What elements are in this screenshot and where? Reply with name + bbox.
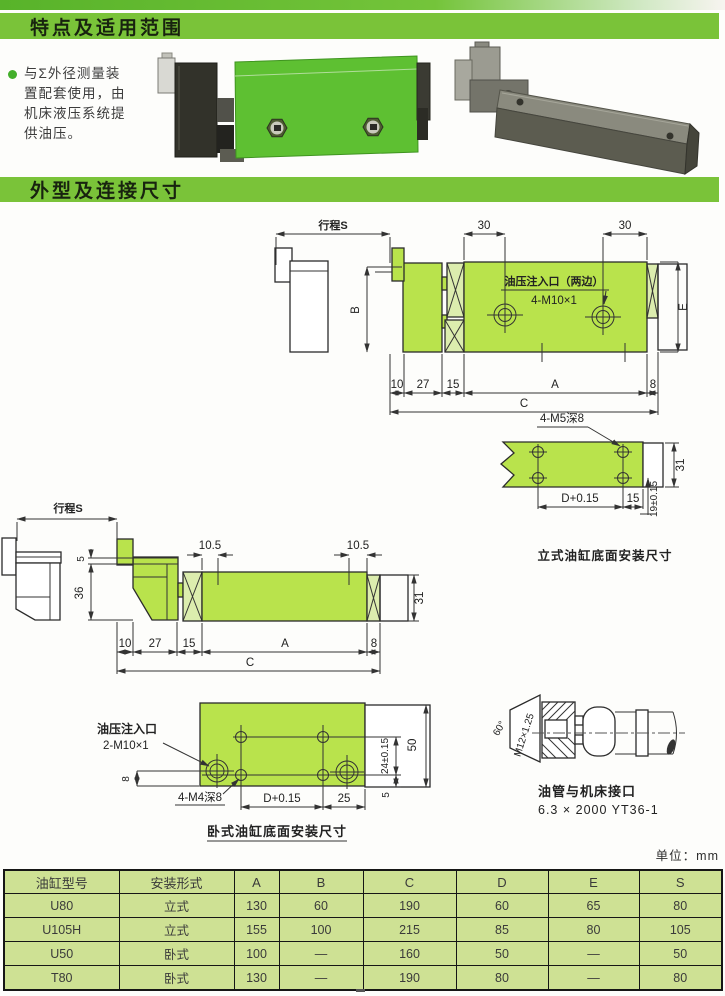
- green-body: [235, 56, 418, 158]
- cell-model: U50: [4, 942, 119, 966]
- bullet-icon: [8, 70, 17, 79]
- col-header-A: A: [234, 870, 279, 894]
- cell-C: 190: [363, 894, 456, 918]
- dim-10: 10: [119, 638, 132, 650]
- cylinder-body: [202, 572, 367, 621]
- drawing-pipe-fitting: 60° M12×1.25 油管与机床接口 6.3 × 2000 YT36-1: [480, 690, 725, 840]
- hex-nut: [267, 119, 287, 136]
- cell-mount: 卧式: [119, 942, 234, 966]
- port-label: 油压注入口（两边）: [505, 274, 604, 288]
- cell-S: 80: [639, 966, 722, 991]
- cell-S: 80: [639, 894, 722, 918]
- cell-S: 105: [639, 918, 722, 942]
- top-strip: [0, 0, 725, 10]
- cell-S: 50: [639, 942, 722, 966]
- dim-A: A: [281, 638, 289, 650]
- cell-mount: 立式: [119, 894, 234, 918]
- cell-model: U105H: [4, 918, 119, 942]
- cell-model: T80: [4, 966, 119, 991]
- dim-D: D+0.15: [263, 793, 300, 805]
- cell-mount: 卧式: [119, 966, 234, 991]
- page-number-mark: [356, 989, 365, 992]
- clevis-block: [470, 47, 500, 80]
- port-label: 油压注入口: [97, 721, 157, 736]
- dim-15: 15: [447, 379, 460, 391]
- dim-27: 27: [417, 379, 430, 391]
- fitting-spec: 6.3 × 2000 YT36-1: [538, 803, 659, 817]
- feature-description: 与Σ外径测量装 置配套使用，由 机床液压系统提 供油压。: [24, 64, 144, 144]
- table-row: U80 立式 130 60 190 60 65 80: [4, 894, 722, 918]
- fitting-shapes: [510, 695, 685, 762]
- mounting-plate: [501, 442, 643, 487]
- drawing-horizontal-side: 行程S 5 36 10.5 10.5 31 10 27 15 A 8 C: [0, 497, 440, 687]
- table-row: T80 卧式 130 — 190 80 — 80: [4, 966, 722, 991]
- dim-15: 15: [183, 638, 196, 650]
- cell-D: 60: [456, 894, 548, 918]
- table-row: U50 卧式 100 — 160 50 — 50: [4, 942, 722, 966]
- dim-C: C: [246, 657, 254, 669]
- section-title-dimensions: 外型及连接尺寸: [30, 176, 184, 203]
- dim-25: 25: [338, 793, 351, 805]
- caption-horizontal-bottom: 卧式油缸底面安装尺寸: [207, 824, 347, 839]
- chrome-block: [158, 58, 175, 93]
- drawing-horizontal-bottom: 油压注入口 2-M10×1 8 4-M4深8 D+0.15 25 24±0.15…: [55, 683, 465, 848]
- cell-B: 100: [279, 918, 363, 942]
- thread-label: 4-M5深8: [540, 411, 584, 425]
- dim-15: 15: [627, 493, 640, 505]
- section-title-features: 特点及适用范围: [30, 13, 184, 40]
- dim-10: 10: [391, 379, 404, 391]
- feature-line: 供油压。: [24, 124, 144, 144]
- drawing-vertical-side: 行程S 30 30 油压注入口（两边） 4-M10×1 B E 10 27 15…: [258, 203, 723, 428]
- cell-C: 160: [363, 942, 456, 966]
- feature-line: 与Σ外径测量装: [24, 64, 144, 84]
- feature-line: 置配套使用，由: [24, 84, 144, 104]
- section-header-features: 特点及适用范围: [0, 13, 719, 39]
- thread-label: 4-M4深8: [178, 790, 222, 804]
- dim-31: 31: [414, 592, 426, 605]
- cell-model: U80: [4, 894, 119, 918]
- angle-label: 60°: [491, 719, 508, 738]
- dim-8: 8: [121, 776, 132, 782]
- cell-A: 130: [234, 894, 279, 918]
- cell-B: —: [279, 966, 363, 991]
- dim-5: 5: [76, 556, 87, 562]
- col-header-model: 油缸型号: [4, 870, 119, 894]
- cell-E: 80: [548, 918, 639, 942]
- cell-C: 190: [363, 966, 456, 991]
- port-thread-label: 2-M10×1: [103, 740, 149, 752]
- cell-C: 215: [363, 918, 456, 942]
- port-thread-label: 4-M10×1: [531, 295, 577, 307]
- dim-5: 5: [381, 792, 392, 798]
- feature-line: 机床液压系统提: [24, 104, 144, 124]
- dim-10.5-left: 10.5: [199, 540, 221, 552]
- cell-A: 130: [234, 966, 279, 991]
- dim-B: B: [350, 306, 362, 314]
- dim-8: 8: [650, 379, 656, 391]
- cell-E: 65: [548, 894, 639, 918]
- drawing-vertical-bottom: 4-M5深8 31 19±0.15 D+0.15 15 立式油缸底面安装尺寸: [455, 408, 720, 573]
- unit-label: 单位：mm: [656, 845, 719, 864]
- cell-D: 80: [456, 966, 548, 991]
- cell-D: 85: [456, 918, 548, 942]
- dim-50: 50: [407, 739, 419, 752]
- dim-8: 8: [371, 638, 377, 650]
- cell-E: —: [548, 966, 639, 991]
- stroke-label: 行程S: [317, 218, 347, 232]
- dim-30-left: 30: [478, 220, 491, 232]
- col-header-E: E: [548, 870, 639, 894]
- dim-36: 36: [74, 587, 86, 600]
- table-row: U105H 立式 155 100 215 85 80 105: [4, 918, 722, 942]
- dim-10.5-right: 10.5: [347, 540, 369, 552]
- section-header-dimensions: 外型及连接尺寸: [0, 177, 719, 202]
- cell-A: 155: [234, 918, 279, 942]
- dim-19: 19±0.15: [649, 481, 660, 518]
- outline-shapes: [275, 248, 687, 352]
- dim-A: A: [551, 379, 559, 391]
- dim-30-right: 30: [619, 220, 632, 232]
- cell-D: 50: [456, 942, 548, 966]
- col-header-B: B: [279, 870, 363, 894]
- caption-vertical-bottom: 立式油缸底面安装尺寸: [537, 548, 672, 563]
- photo-green-cylinder: [135, 50, 440, 175]
- cell-B: 60: [279, 894, 363, 918]
- col-header-D: D: [456, 870, 548, 894]
- col-header-C: C: [363, 870, 456, 894]
- fitting-caption: 油管与机床接口: [538, 784, 636, 799]
- cell-B: —: [279, 942, 363, 966]
- catalog-page: 特点及适用范围 与Σ外径测量装 置配套使用，由 机床液压系统提 供油压。: [0, 0, 725, 996]
- col-header-S: S: [639, 870, 722, 894]
- spec-table: 油缸型号 安装形式 A B C D E S U80 立式 130 60 190 …: [3, 869, 723, 991]
- stroke-label: 行程S: [52, 501, 82, 515]
- cell-mount: 立式: [119, 918, 234, 942]
- col-header-mount: 安装形式: [119, 870, 234, 894]
- dim-31: 31: [675, 459, 687, 472]
- table-header-row: 油缸型号 安装形式 A B C D E S: [4, 870, 722, 894]
- cell-A: 100: [234, 942, 279, 966]
- dim-24: 24±0.15: [380, 738, 391, 775]
- dim-E: E: [678, 303, 690, 311]
- cell-E: —: [548, 942, 639, 966]
- dark-block: [175, 63, 217, 157]
- hex-nut: [363, 118, 383, 135]
- photo-metal-cylinder: [445, 38, 725, 180]
- dim-D: D+0.15: [561, 493, 598, 505]
- dim-27: 27: [149, 638, 162, 650]
